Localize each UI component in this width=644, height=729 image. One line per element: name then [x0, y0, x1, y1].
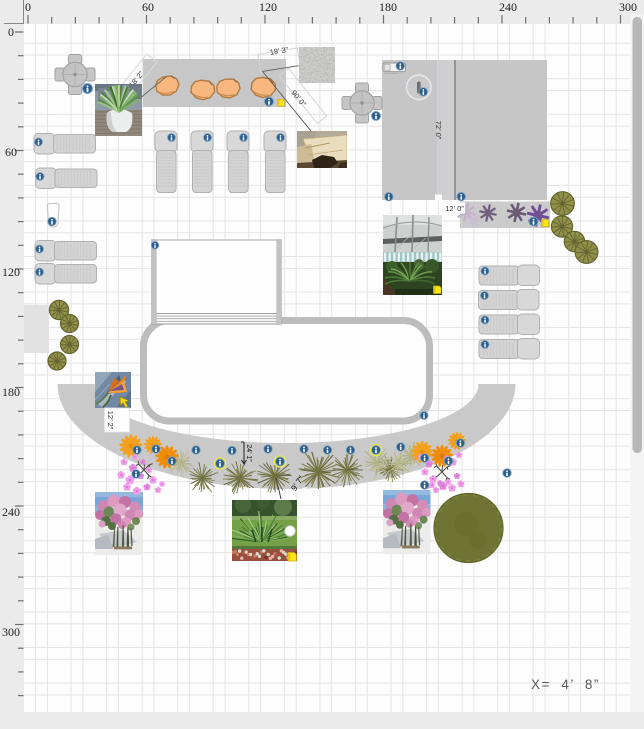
svg-text:240: 240 — [499, 0, 517, 14]
svg-text:12’ 0”: 12’ 0” — [445, 204, 464, 213]
svg-text:60: 60 — [142, 0, 154, 14]
svg-text:0: 0 — [25, 0, 31, 14]
svg-text:60: 60 — [5, 145, 17, 159]
svg-text:120: 120 — [259, 0, 277, 14]
svg-text:300: 300 — [619, 0, 637, 14]
svg-text:240: 240 — [2, 505, 20, 519]
svg-text:180: 180 — [2, 385, 20, 399]
svg-text:12’ 2”: 12’ 2” — [106, 411, 115, 430]
svg-text:180: 180 — [379, 0, 397, 14]
svg-text:300: 300 — [2, 625, 20, 639]
svg-text:120: 120 — [2, 265, 20, 279]
svg-text:72’ 0”: 72’ 0” — [434, 121, 443, 140]
svg-text:0: 0 — [8, 25, 14, 39]
svg-text:X= 4’ 8”: X= 4’ 8” — [531, 677, 600, 692]
svg-text:24’ 1”: 24’ 1” — [245, 444, 252, 462]
